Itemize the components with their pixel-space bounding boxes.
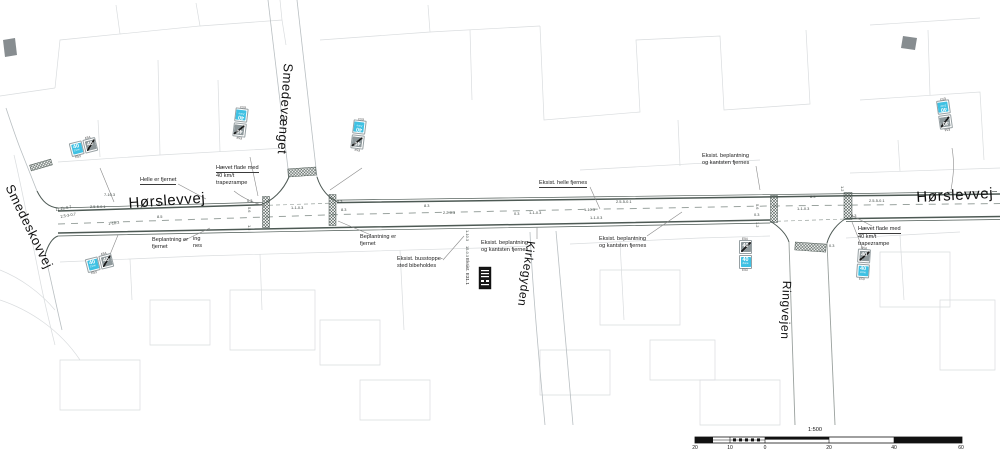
annotation-callout: Eksist. beplantning og kantsten fjernes: [599, 236, 646, 249]
dimension-text: 8.3: [158, 201, 163, 206]
dimension-text: 1-1-0.3: [797, 206, 809, 211]
street-name-label: Ringvejen: [778, 281, 794, 340]
dimension-text: 5.6: [755, 204, 760, 209]
scale-bar-tick-label: 60: [958, 445, 964, 451]
dimension-text: 2.2-0.3: [443, 210, 455, 215]
dimension-text: 2.5-5-0.1: [616, 199, 632, 204]
dimension-text: 8.3: [424, 203, 429, 208]
bus-stop-icon: [479, 267, 491, 289]
annotation-callout: Beplantning er fjernet: [360, 234, 396, 247]
dimension-text: 1-10.3: [465, 230, 470, 241]
dimension-text: 0.3: [851, 213, 856, 218]
annotation-callout: Eksist. beplantning og kantsten fjernes: [702, 153, 749, 166]
dimension-text: 8.5: [157, 214, 162, 219]
scale-bar: [695, 437, 962, 443]
speed-zone-sign-pair: 40 Zone E53 40 E54: [739, 240, 752, 269]
dimension-text: 0.3: [247, 198, 252, 203]
scale-bar-tick-label: 10: [727, 445, 733, 451]
speed-zone-sign-pair: 40 Zone E53 40 E54: [856, 249, 871, 279]
sign-code-label: E53: [940, 96, 946, 101]
end-zone-40-sign-icon: 40 E54: [938, 114, 953, 130]
zone-40-sign-icon: 40 Zone E53: [234, 107, 249, 122]
scale-bar-tick-label: 20: [826, 445, 832, 451]
dimension-text: 8.3: [810, 194, 815, 199]
sign-code-label: E53: [240, 105, 246, 110]
sign-code-label: E54: [944, 128, 950, 133]
dimension-text: 0.3: [829, 243, 834, 248]
sign-code-label: E53: [742, 268, 748, 272]
zone-40-sign-icon: 40 Zone E53: [856, 264, 870, 279]
sign-code-label: E54: [861, 246, 867, 250]
zone-40-sign-icon: 40 Zone E53: [352, 119, 367, 134]
dimension-text: 1.2: [247, 225, 252, 230]
annotation-callout: Helle er fjernet: [140, 177, 176, 185]
dimension-text: 1-1-0.3: [529, 210, 541, 215]
scale-bar-tick-label: 40: [891, 445, 897, 451]
street-name-text: Ringvejen: [778, 281, 794, 340]
dimension-text: 0.3: [754, 212, 759, 217]
dimension-text: 15-0.3: [465, 246, 470, 257]
annotation-callout: Eksist. busstoppe- sted bibeholdes: [397, 256, 443, 269]
annotation-callout: ing nes: [193, 236, 202, 249]
scale-bar-tick-label: 0: [764, 445, 767, 451]
annotation-callout: Beplantning er fjernet: [152, 237, 188, 250]
annotation-callout: Hævet flade med 40 km/t trapezrampe: [858, 226, 901, 248]
bus-stop-label: Eksist. E31.1: [465, 258, 470, 285]
road-plan-canvas: Hørslevvej Hørslevvej Smedeskovvej Smede…: [0, 0, 1000, 454]
dimension-text: 1.2: [755, 222, 760, 227]
dimension-text: 2.5-5-0.1: [90, 204, 106, 209]
sign-code-label: E53: [859, 277, 865, 281]
dimension-text: 0.3: [514, 211, 519, 216]
annotation-callout: Eksist. helle fjernes: [539, 180, 587, 188]
end-zone-40-sign-icon: 40 E54: [350, 134, 365, 149]
end-zone-40-sign-icon: 40 E54: [232, 122, 247, 137]
annotation-callout: Eksist. beplantning og kantsten fjernes: [481, 240, 528, 253]
dimension-text: 8.3: [341, 207, 346, 212]
dimension-text: 1.2: [840, 186, 845, 191]
scale-bar-tick-label: 20: [692, 445, 698, 451]
dimension-text: 7-10.3: [104, 192, 115, 197]
end-zone-40-sign-icon: 40 E54: [857, 249, 871, 264]
plan-drawing: [0, 0, 1000, 454]
dimension-text: 0.3: [337, 199, 342, 204]
dimension-text: 1-1-0.3: [291, 205, 303, 210]
sign-code-label: E54: [354, 148, 360, 153]
annotation-callout: Hævet flade med 40 km/t trapezrampe: [216, 165, 259, 187]
dimension-text: 1-10.3: [584, 207, 595, 212]
dimension-text: 2.5-5-0.1: [869, 198, 885, 203]
zone-40-sign-icon: 40 Zone E53: [739, 255, 752, 269]
scale-ratio-label: 1:500: [808, 427, 822, 433]
dimension-text: 1-1-0.3: [590, 215, 602, 220]
zone-40-sign-icon: 40 Zone E53: [936, 99, 951, 115]
sign-code-label: E54: [742, 237, 748, 241]
filled-buildings: [3, 36, 917, 57]
sign-code-label: E53: [358, 117, 364, 122]
end-zone-40-sign-icon: 40 E54: [739, 240, 752, 254]
ringvejen-edges: [789, 242, 835, 425]
dimension-text: 5.6: [247, 207, 252, 212]
sign-code-label: E54: [236, 136, 242, 141]
